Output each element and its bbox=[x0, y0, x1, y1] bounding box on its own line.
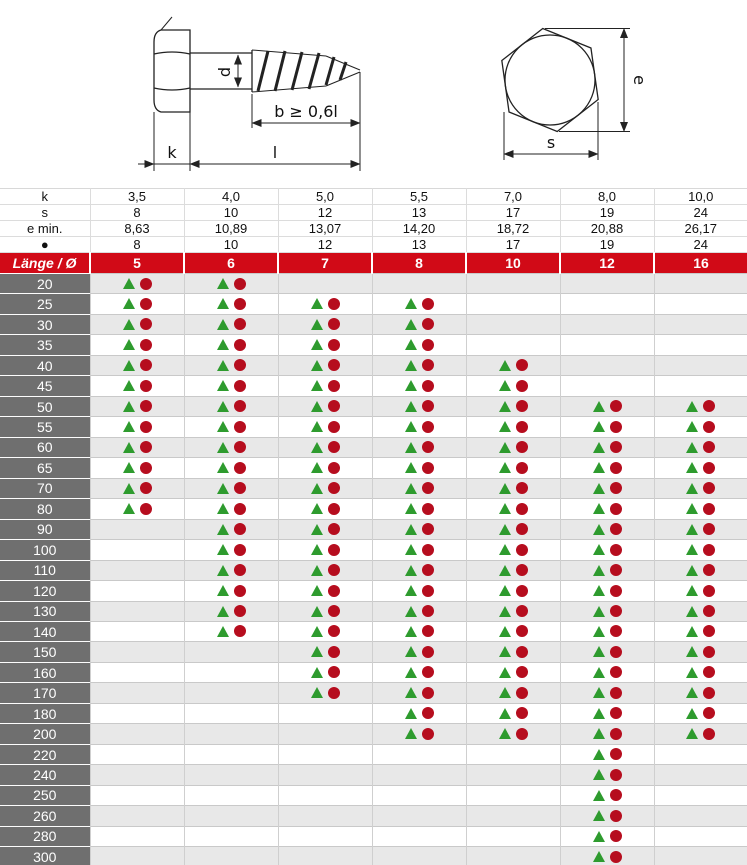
circle-marker bbox=[703, 564, 715, 576]
circle-marker bbox=[234, 585, 246, 597]
diameter-value-cell: 7 bbox=[278, 253, 372, 274]
availability-cell bbox=[372, 540, 466, 560]
availability-cell bbox=[560, 581, 654, 601]
s-label: s bbox=[547, 133, 555, 152]
circle-marker bbox=[516, 564, 528, 576]
circle-marker bbox=[516, 503, 528, 515]
availability-markers bbox=[311, 482, 340, 494]
spec-value-cell: 26,17 bbox=[654, 221, 747, 237]
availability-cell bbox=[372, 765, 466, 785]
availability-markers bbox=[311, 298, 340, 310]
availability-markers bbox=[593, 482, 622, 494]
length-label: 110 bbox=[0, 560, 90, 580]
availability-cell bbox=[90, 396, 184, 416]
availability-cell bbox=[466, 744, 560, 764]
availability-cell bbox=[466, 560, 560, 580]
availability-cell bbox=[466, 499, 560, 519]
length-row: 55 bbox=[0, 417, 747, 437]
availability-markers bbox=[311, 523, 340, 535]
circle-marker bbox=[703, 707, 715, 719]
availability-cell bbox=[278, 601, 372, 621]
triangle-marker bbox=[405, 503, 417, 514]
availability-cell bbox=[184, 703, 278, 723]
availability-markers bbox=[123, 298, 152, 310]
circle-marker bbox=[234, 339, 246, 351]
availability-cell bbox=[654, 458, 747, 478]
availability-markers bbox=[405, 728, 434, 740]
triangle-marker bbox=[686, 646, 698, 657]
availability-cell bbox=[654, 335, 747, 355]
availability-cell bbox=[90, 437, 184, 457]
circle-marker bbox=[140, 400, 152, 412]
triangle-marker bbox=[217, 442, 229, 453]
triangle-marker bbox=[593, 810, 605, 821]
availability-cell bbox=[278, 662, 372, 682]
availability-cell bbox=[560, 355, 654, 375]
availability-markers bbox=[499, 503, 528, 515]
availability-cell bbox=[466, 703, 560, 723]
circle-marker bbox=[328, 646, 340, 658]
availability-markers bbox=[217, 380, 246, 392]
availability-cell bbox=[560, 621, 654, 641]
availability-cell bbox=[560, 478, 654, 498]
availability-cell bbox=[560, 724, 654, 744]
triangle-marker bbox=[217, 339, 229, 350]
k-label: k bbox=[167, 143, 177, 162]
availability-markers bbox=[405, 421, 434, 433]
circle-marker bbox=[328, 523, 340, 535]
spec-row-label: ● bbox=[0, 237, 90, 253]
availability-cell bbox=[90, 355, 184, 375]
availability-cell bbox=[560, 519, 654, 539]
availability-cell bbox=[90, 560, 184, 580]
availability-cell bbox=[372, 478, 466, 498]
circle-marker bbox=[234, 482, 246, 494]
circle-marker bbox=[703, 421, 715, 433]
availability-cell bbox=[654, 683, 747, 703]
spec-value-cell: 20,88 bbox=[560, 221, 654, 237]
availability-markers bbox=[405, 400, 434, 412]
length-row: 70 bbox=[0, 478, 747, 498]
availability-markers bbox=[593, 707, 622, 719]
circle-marker bbox=[610, 646, 622, 658]
circle-marker bbox=[610, 564, 622, 576]
diameter-value-cell: 16 bbox=[654, 253, 747, 274]
availability-markers bbox=[405, 503, 434, 515]
availability-cell bbox=[90, 458, 184, 478]
spec-value-cell: 24 bbox=[654, 205, 747, 221]
hex-head-top-view-drawing: e s bbox=[478, 8, 662, 184]
availability-cell bbox=[654, 314, 747, 334]
availability-cell bbox=[90, 601, 184, 621]
availability-markers bbox=[593, 666, 622, 678]
availability-cell bbox=[184, 376, 278, 396]
availability-markers bbox=[405, 462, 434, 474]
circle-marker bbox=[328, 585, 340, 597]
availability-markers bbox=[311, 625, 340, 637]
availability-markers bbox=[123, 380, 152, 392]
length-row: 35 bbox=[0, 335, 747, 355]
triangle-marker bbox=[123, 278, 135, 289]
circle-marker bbox=[234, 278, 246, 290]
circle-marker bbox=[610, 400, 622, 412]
circle-marker bbox=[422, 421, 434, 433]
triangle-marker bbox=[593, 687, 605, 698]
availability-markers bbox=[686, 523, 715, 535]
availability-markers bbox=[593, 830, 622, 842]
availability-cell bbox=[654, 826, 747, 846]
spec-value-cell: 8 bbox=[90, 237, 184, 253]
availability-cell bbox=[372, 355, 466, 375]
dimension-b: b ≥ 0,6l bbox=[252, 72, 360, 171]
triangle-marker bbox=[499, 360, 511, 371]
triangle-marker bbox=[593, 708, 605, 719]
availability-markers bbox=[593, 769, 622, 781]
availability-cell bbox=[560, 683, 654, 703]
length-label: 180 bbox=[0, 703, 90, 723]
length-row: 25 bbox=[0, 294, 747, 314]
availability-markers bbox=[311, 646, 340, 658]
availability-cell bbox=[278, 335, 372, 355]
spec-value-cell: 4,0 bbox=[184, 189, 278, 205]
triangle-marker bbox=[686, 483, 698, 494]
availability-cell bbox=[372, 642, 466, 662]
circle-marker bbox=[610, 421, 622, 433]
availability-cell bbox=[466, 581, 560, 601]
availability-cell bbox=[278, 540, 372, 560]
availability-cell bbox=[372, 396, 466, 416]
availability-markers bbox=[686, 400, 715, 412]
length-label: 80 bbox=[0, 499, 90, 519]
triangle-marker bbox=[217, 585, 229, 596]
circle-marker bbox=[328, 482, 340, 494]
availability-markers bbox=[311, 359, 340, 371]
availability-cell bbox=[654, 499, 747, 519]
availability-markers bbox=[405, 298, 434, 310]
availability-cell bbox=[466, 724, 560, 744]
spec-value-cell: 8,63 bbox=[90, 221, 184, 237]
availability-markers bbox=[686, 605, 715, 617]
triangle-marker bbox=[123, 380, 135, 391]
circle-marker bbox=[703, 605, 715, 617]
availability-cell bbox=[654, 642, 747, 662]
circle-marker bbox=[422, 687, 434, 699]
length-label: 200 bbox=[0, 724, 90, 744]
availability-cell bbox=[654, 540, 747, 560]
availability-markers bbox=[405, 585, 434, 597]
circle-marker bbox=[328, 625, 340, 637]
circle-marker bbox=[234, 421, 246, 433]
circle-marker bbox=[422, 441, 434, 453]
availability-markers bbox=[593, 564, 622, 576]
availability-markers bbox=[311, 544, 340, 556]
triangle-marker bbox=[593, 646, 605, 657]
length-row: 200 bbox=[0, 724, 747, 744]
triangle-marker bbox=[686, 421, 698, 432]
diameter-value-cell: 10 bbox=[466, 253, 560, 274]
availability-markers bbox=[686, 503, 715, 515]
circle-marker bbox=[328, 339, 340, 351]
availability-markers bbox=[686, 585, 715, 597]
length-label: 160 bbox=[0, 662, 90, 682]
triangle-marker bbox=[311, 298, 323, 309]
circle-marker bbox=[140, 339, 152, 351]
circle-marker bbox=[516, 625, 528, 637]
availability-cell bbox=[466, 826, 560, 846]
availability-cell bbox=[372, 683, 466, 703]
triangle-marker bbox=[405, 606, 417, 617]
circle-marker bbox=[703, 441, 715, 453]
availability-markers bbox=[686, 462, 715, 474]
availability-cell bbox=[654, 396, 747, 416]
availability-cell bbox=[466, 601, 560, 621]
availability-markers bbox=[593, 544, 622, 556]
availability-markers bbox=[593, 421, 622, 433]
triangle-marker bbox=[405, 360, 417, 371]
circle-marker bbox=[422, 462, 434, 474]
availability-cell bbox=[184, 785, 278, 805]
availability-cell bbox=[278, 274, 372, 294]
availability-cell bbox=[90, 642, 184, 662]
availability-cell bbox=[278, 355, 372, 375]
circle-marker bbox=[703, 585, 715, 597]
availability-cell bbox=[372, 417, 466, 437]
availability-markers bbox=[311, 564, 340, 576]
length-label: 60 bbox=[0, 437, 90, 457]
circle-marker bbox=[140, 503, 152, 515]
availability-cell bbox=[654, 621, 747, 641]
triangle-marker bbox=[405, 298, 417, 309]
screw-head bbox=[154, 17, 190, 112]
table-body: k3,54,05,05,57,08,010,0s8101213171924e m… bbox=[0, 189, 747, 865]
availability-cell bbox=[466, 396, 560, 416]
triangle-marker bbox=[311, 319, 323, 330]
circle-marker bbox=[234, 318, 246, 330]
availability-cell bbox=[560, 274, 654, 294]
triangle-marker bbox=[405, 667, 417, 678]
circle-marker bbox=[610, 625, 622, 637]
length-row: 60 bbox=[0, 437, 747, 457]
availability-cell bbox=[184, 335, 278, 355]
spec-value-cell: 5,5 bbox=[372, 189, 466, 205]
availability-markers bbox=[405, 318, 434, 330]
circle-marker bbox=[422, 523, 434, 535]
circle-marker bbox=[610, 441, 622, 453]
circle-marker bbox=[703, 728, 715, 740]
circle-marker bbox=[234, 523, 246, 535]
availability-markers bbox=[123, 278, 152, 290]
length-row: 100 bbox=[0, 540, 747, 560]
availability-cell bbox=[372, 601, 466, 621]
triangle-marker bbox=[593, 544, 605, 555]
availability-cell bbox=[90, 621, 184, 641]
length-label: 150 bbox=[0, 642, 90, 662]
availability-markers bbox=[217, 585, 246, 597]
spec-row-label: e min. bbox=[0, 221, 90, 237]
length-row: 80 bbox=[0, 499, 747, 519]
triangle-marker bbox=[593, 790, 605, 801]
length-row: 90 bbox=[0, 519, 747, 539]
triangle-marker bbox=[217, 544, 229, 555]
availability-cell bbox=[654, 765, 747, 785]
availability-cell bbox=[560, 806, 654, 826]
length-row: 20 bbox=[0, 274, 747, 294]
availability-cell bbox=[90, 683, 184, 703]
availability-markers bbox=[123, 503, 152, 515]
spec-value-cell: 5,0 bbox=[278, 189, 372, 205]
availability-cell bbox=[372, 376, 466, 396]
circle-marker bbox=[422, 298, 434, 310]
triangle-marker bbox=[593, 831, 605, 842]
b-label: b ≥ 0,6l bbox=[274, 102, 338, 121]
triangle-marker bbox=[123, 503, 135, 514]
availability-markers bbox=[593, 646, 622, 658]
availability-cell bbox=[278, 642, 372, 662]
availability-markers bbox=[499, 421, 528, 433]
availability-markers bbox=[123, 339, 152, 351]
triangle-marker bbox=[311, 626, 323, 637]
length-row: 250 bbox=[0, 785, 747, 805]
availability-markers bbox=[499, 585, 528, 597]
availability-markers bbox=[686, 441, 715, 453]
availability-cell bbox=[372, 335, 466, 355]
availability-cell bbox=[90, 847, 184, 865]
triangle-marker bbox=[593, 565, 605, 576]
triangle-marker bbox=[686, 687, 698, 698]
circle-marker bbox=[328, 359, 340, 371]
availability-cell bbox=[372, 274, 466, 294]
length-row: 120 bbox=[0, 581, 747, 601]
availability-cell bbox=[654, 785, 747, 805]
triangle-marker bbox=[405, 524, 417, 535]
triangle-marker bbox=[311, 462, 323, 473]
availability-markers bbox=[499, 666, 528, 678]
availability-markers bbox=[311, 339, 340, 351]
triangle-marker bbox=[311, 483, 323, 494]
availability-cell bbox=[466, 540, 560, 560]
availability-markers bbox=[217, 523, 246, 535]
availability-cell bbox=[184, 294, 278, 314]
triangle-marker bbox=[311, 687, 323, 698]
triangle-marker bbox=[499, 524, 511, 535]
triangle-marker bbox=[593, 524, 605, 535]
availability-cell bbox=[560, 499, 654, 519]
availability-markers bbox=[499, 482, 528, 494]
availability-cell bbox=[278, 806, 372, 826]
availability-cell bbox=[560, 458, 654, 478]
triangle-marker bbox=[217, 606, 229, 617]
availability-cell bbox=[184, 683, 278, 703]
availability-cell bbox=[90, 376, 184, 396]
availability-markers bbox=[217, 503, 246, 515]
circle-marker bbox=[516, 359, 528, 371]
availability-cell bbox=[278, 294, 372, 314]
availability-cell bbox=[654, 519, 747, 539]
triangle-marker bbox=[686, 728, 698, 739]
triangle-marker bbox=[593, 769, 605, 780]
triangle-marker bbox=[499, 585, 511, 596]
length-row: 180 bbox=[0, 703, 747, 723]
availability-markers bbox=[686, 687, 715, 699]
diameter-value-cell: 5 bbox=[90, 253, 184, 274]
triangle-marker bbox=[499, 503, 511, 514]
availability-markers bbox=[123, 421, 152, 433]
technical-drawings: d b ≥ 0,6l k l bbox=[0, 0, 747, 188]
availability-cell bbox=[654, 274, 747, 294]
circle-marker bbox=[703, 482, 715, 494]
spec-value-cell: 10 bbox=[184, 205, 278, 221]
diameter-value-cell: 8 bbox=[372, 253, 466, 274]
availability-cell bbox=[90, 765, 184, 785]
availability-cell bbox=[90, 785, 184, 805]
availability-cell bbox=[184, 519, 278, 539]
availability-cell bbox=[184, 540, 278, 560]
availability-cell bbox=[184, 621, 278, 641]
availability-cell bbox=[372, 294, 466, 314]
availability-cell bbox=[278, 396, 372, 416]
length-row: 50 bbox=[0, 396, 747, 416]
availability-cell bbox=[560, 826, 654, 846]
circle-marker bbox=[610, 605, 622, 617]
availability-cell bbox=[278, 847, 372, 865]
circle-marker bbox=[703, 544, 715, 556]
availability-cell bbox=[654, 560, 747, 580]
availability-markers bbox=[217, 564, 246, 576]
triangle-marker bbox=[499, 544, 511, 555]
circle-marker bbox=[234, 544, 246, 556]
availability-cell bbox=[278, 765, 372, 785]
triangle-marker bbox=[311, 339, 323, 350]
triangle-marker bbox=[593, 606, 605, 617]
availability-markers bbox=[405, 605, 434, 617]
availability-markers bbox=[311, 441, 340, 453]
availability-markers bbox=[311, 503, 340, 515]
availability-cell bbox=[184, 417, 278, 437]
availability-cell bbox=[560, 335, 654, 355]
availability-markers bbox=[123, 462, 152, 474]
spec-value-cell: 14,20 bbox=[372, 221, 466, 237]
availability-cell bbox=[466, 417, 560, 437]
availability-cell bbox=[372, 519, 466, 539]
triangle-marker bbox=[217, 462, 229, 473]
circle-marker bbox=[516, 482, 528, 494]
spec-row: ●8101213171924 bbox=[0, 237, 747, 253]
availability-cell bbox=[654, 294, 747, 314]
availability-markers bbox=[593, 810, 622, 822]
circle-marker bbox=[422, 318, 434, 330]
length-label: 40 bbox=[0, 355, 90, 375]
availability-cell bbox=[654, 581, 747, 601]
triangle-marker bbox=[593, 585, 605, 596]
triangle-marker bbox=[499, 380, 511, 391]
availability-markers bbox=[499, 605, 528, 617]
triangle-marker bbox=[686, 565, 698, 576]
availability-markers bbox=[311, 687, 340, 699]
circle-marker bbox=[610, 544, 622, 556]
triangle-marker bbox=[311, 380, 323, 391]
availability-cell bbox=[654, 355, 747, 375]
triangle-marker bbox=[311, 606, 323, 617]
availability-cell bbox=[184, 806, 278, 826]
availability-markers bbox=[593, 748, 622, 760]
length-row: 130 bbox=[0, 601, 747, 621]
circle-marker bbox=[422, 666, 434, 678]
availability-cell bbox=[372, 785, 466, 805]
triangle-marker bbox=[123, 442, 135, 453]
availability-markers bbox=[405, 625, 434, 637]
triangle-marker bbox=[593, 483, 605, 494]
triangle-marker bbox=[499, 687, 511, 698]
